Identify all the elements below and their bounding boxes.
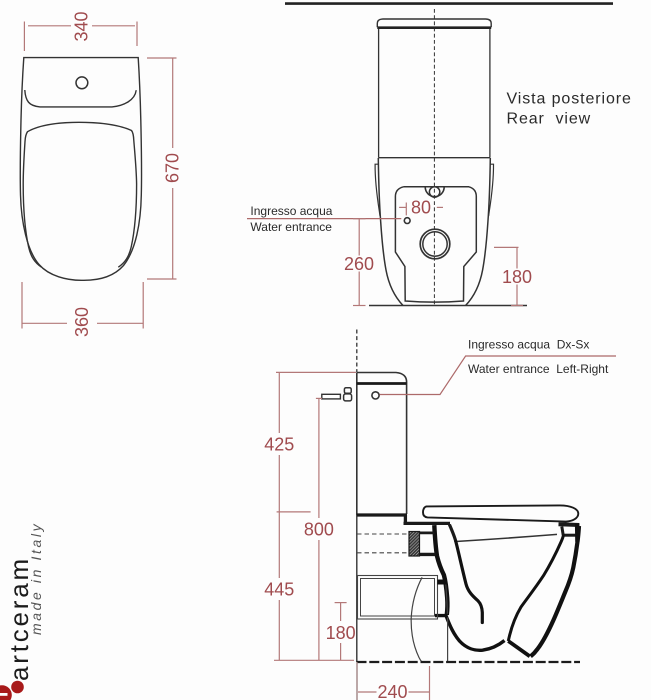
svg-text:445: 445: [264, 579, 294, 599]
svg-text:Ingresso acqua Dx-Sx: Ingresso acqua Dx-Sx: [468, 338, 589, 352]
svg-text:240: 240: [377, 682, 407, 700]
svg-text:Vista posteriore: Vista posteriore: [507, 91, 632, 108]
svg-text:Water entrance Left-Right: Water entrance Left-Right: [468, 362, 609, 376]
svg-text:180: 180: [502, 267, 532, 287]
svg-text:425: 425: [264, 434, 294, 454]
svg-text:180: 180: [326, 623, 356, 643]
svg-text:340: 340: [72, 11, 92, 41]
svg-text:360: 360: [72, 307, 92, 337]
svg-text:670: 670: [163, 153, 183, 183]
svg-text:Water entrance: Water entrance: [250, 220, 332, 234]
svg-text:Rear view: Rear view: [507, 110, 592, 127]
svg-text:Ingresso acqua: Ingresso acqua: [250, 204, 332, 218]
svg-text:260: 260: [344, 254, 374, 274]
svg-text:made in Italy: made in Italy: [28, 522, 44, 635]
svg-text:800: 800: [304, 519, 334, 539]
svg-text:80: 80: [411, 198, 431, 218]
